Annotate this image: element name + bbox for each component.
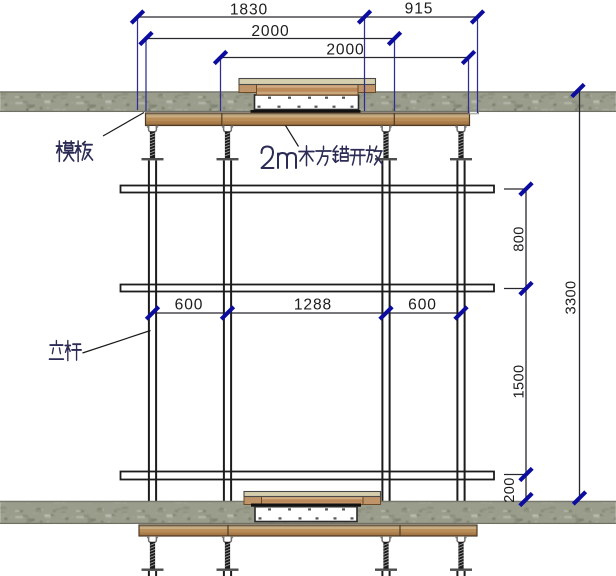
svg-text:3300: 3300 [564,280,580,314]
svg-text:915: 915 [405,1,434,18]
svg-text:1500: 1500 [512,364,528,398]
svg-text:2000: 2000 [326,42,364,59]
svg-text:600: 600 [175,297,204,314]
svg-text:1830: 1830 [230,2,268,19]
svg-text:1288: 1288 [294,297,332,314]
svg-text:800: 800 [512,226,528,252]
svg-text:600: 600 [408,297,437,314]
svg-text:200: 200 [502,477,518,503]
svg-text:2000: 2000 [251,23,289,40]
